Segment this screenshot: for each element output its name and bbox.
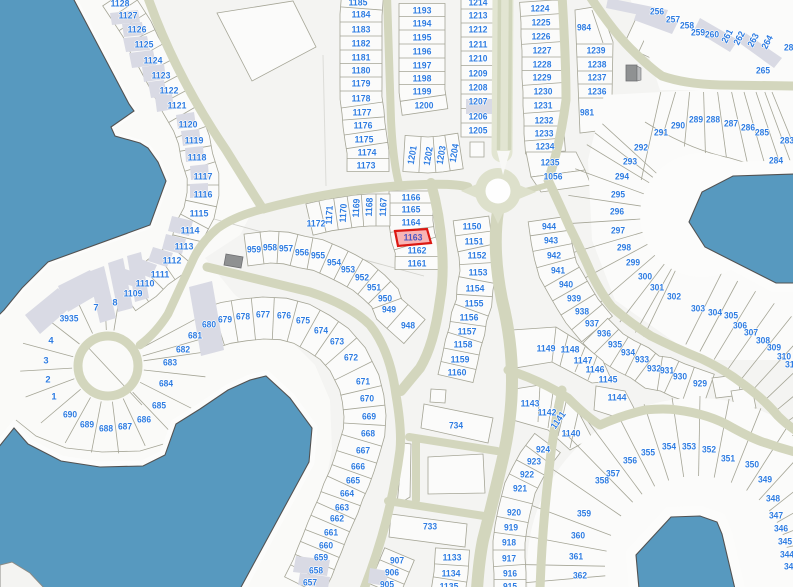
svg-text:940: 940 bbox=[559, 278, 573, 289]
svg-text:1159: 1159 bbox=[451, 353, 470, 364]
svg-text:734: 734 bbox=[449, 419, 464, 430]
svg-text:1118: 1118 bbox=[188, 151, 207, 162]
svg-text:949: 949 bbox=[382, 303, 396, 314]
svg-text:689: 689 bbox=[80, 418, 94, 429]
svg-text:282: 282 bbox=[784, 41, 793, 52]
svg-text:916: 916 bbox=[503, 567, 517, 578]
svg-text:1114: 1114 bbox=[181, 224, 201, 235]
svg-text:1235: 1235 bbox=[541, 156, 560, 167]
svg-text:1197: 1197 bbox=[413, 59, 432, 70]
svg-text:355: 355 bbox=[641, 446, 655, 457]
svg-text:957: 957 bbox=[279, 242, 293, 253]
svg-text:1174: 1174 bbox=[358, 146, 378, 157]
svg-text:905: 905 bbox=[380, 578, 394, 587]
svg-text:658: 658 bbox=[309, 564, 323, 575]
svg-text:1112: 1112 bbox=[163, 254, 182, 265]
svg-text:1155: 1155 bbox=[465, 297, 484, 308]
svg-text:1178: 1178 bbox=[352, 92, 371, 103]
svg-text:668: 668 bbox=[361, 427, 375, 438]
svg-text:360: 360 bbox=[571, 529, 585, 540]
svg-text:666: 666 bbox=[351, 460, 365, 471]
svg-text:1167: 1167 bbox=[377, 197, 389, 216]
svg-text:959: 959 bbox=[247, 243, 261, 254]
svg-text:1227: 1227 bbox=[533, 44, 552, 55]
svg-text:1150: 1150 bbox=[463, 220, 482, 231]
svg-text:259: 259 bbox=[691, 26, 705, 37]
svg-text:8: 8 bbox=[112, 296, 117, 307]
svg-text:1177: 1177 bbox=[353, 106, 372, 117]
svg-text:356: 356 bbox=[623, 454, 637, 465]
svg-text:1224: 1224 bbox=[531, 2, 551, 13]
svg-text:353: 353 bbox=[682, 440, 696, 451]
svg-text:675: 675 bbox=[296, 314, 310, 325]
svg-text:284: 284 bbox=[769, 154, 784, 165]
svg-text:350: 350 bbox=[745, 458, 759, 469]
svg-text:684: 684 bbox=[159, 377, 174, 388]
svg-text:915: 915 bbox=[503, 580, 517, 587]
svg-text:1169: 1169 bbox=[350, 198, 362, 217]
svg-text:683: 683 bbox=[163, 356, 177, 367]
svg-text:7: 7 bbox=[93, 301, 98, 312]
svg-text:1121: 1121 bbox=[168, 99, 187, 110]
svg-text:345: 345 bbox=[778, 535, 792, 546]
svg-text:673: 673 bbox=[330, 335, 344, 346]
svg-text:1180: 1180 bbox=[352, 64, 371, 75]
svg-text:3: 3 bbox=[43, 354, 48, 365]
svg-text:362: 362 bbox=[573, 569, 587, 580]
svg-text:256: 256 bbox=[650, 5, 664, 16]
svg-text:1196: 1196 bbox=[413, 45, 432, 56]
svg-text:1164: 1164 bbox=[402, 216, 422, 227]
svg-text:1117: 1117 bbox=[194, 170, 213, 181]
svg-text:1231: 1231 bbox=[534, 99, 553, 110]
svg-text:1165: 1165 bbox=[402, 203, 421, 214]
svg-text:906: 906 bbox=[385, 566, 399, 577]
svg-text:663: 663 bbox=[335, 501, 349, 512]
svg-text:257: 257 bbox=[666, 13, 680, 24]
svg-text:923: 923 bbox=[527, 455, 541, 466]
svg-text:1120: 1120 bbox=[179, 118, 198, 129]
svg-text:1225: 1225 bbox=[532, 16, 551, 27]
svg-text:1211: 1211 bbox=[469, 38, 488, 49]
svg-text:1212: 1212 bbox=[469, 23, 488, 34]
svg-text:347: 347 bbox=[769, 509, 783, 520]
svg-text:304: 304 bbox=[708, 306, 723, 317]
svg-text:300: 300 bbox=[638, 270, 652, 281]
svg-text:935: 935 bbox=[608, 338, 622, 349]
svg-text:1156: 1156 bbox=[460, 311, 479, 322]
svg-text:941: 941 bbox=[551, 264, 565, 275]
svg-text:354: 354 bbox=[662, 440, 677, 451]
svg-text:917: 917 bbox=[502, 552, 516, 563]
svg-text:1127: 1127 bbox=[119, 9, 138, 20]
svg-text:1115: 1115 bbox=[190, 207, 209, 218]
svg-text:1208: 1208 bbox=[469, 81, 488, 92]
svg-text:1237: 1237 bbox=[588, 71, 607, 82]
svg-text:311: 311 bbox=[785, 358, 793, 369]
svg-text:1232: 1232 bbox=[535, 114, 554, 125]
svg-text:955: 955 bbox=[311, 249, 325, 260]
svg-text:919: 919 bbox=[504, 521, 518, 532]
svg-text:1183: 1183 bbox=[352, 23, 371, 34]
svg-text:931: 931 bbox=[660, 364, 674, 375]
svg-text:938: 938 bbox=[575, 305, 589, 316]
svg-text:676: 676 bbox=[277, 309, 291, 320]
svg-text:690: 690 bbox=[63, 408, 77, 419]
svg-text:1179: 1179 bbox=[352, 77, 371, 88]
svg-text:956: 956 bbox=[295, 246, 309, 257]
svg-text:260: 260 bbox=[705, 28, 719, 39]
svg-text:1134: 1134 bbox=[442, 567, 462, 578]
svg-text:681: 681 bbox=[188, 329, 202, 340]
svg-text:359: 359 bbox=[577, 507, 591, 518]
svg-text:934: 934 bbox=[621, 346, 636, 357]
svg-text:950: 950 bbox=[378, 292, 392, 303]
svg-text:733: 733 bbox=[423, 520, 437, 531]
svg-text:951: 951 bbox=[367, 281, 381, 292]
svg-text:296: 296 bbox=[610, 205, 624, 216]
svg-text:1199: 1199 bbox=[413, 85, 432, 96]
svg-text:3935: 3935 bbox=[60, 312, 79, 323]
svg-text:1125: 1125 bbox=[135, 38, 154, 49]
svg-text:1149: 1149 bbox=[537, 342, 556, 353]
svg-text:1234: 1234 bbox=[536, 140, 556, 151]
svg-text:303: 303 bbox=[691, 302, 705, 313]
svg-text:661: 661 bbox=[324, 526, 338, 537]
svg-text:1238: 1238 bbox=[588, 58, 607, 69]
svg-text:349: 349 bbox=[758, 473, 772, 484]
svg-text:677: 677 bbox=[256, 308, 270, 319]
svg-text:1162: 1162 bbox=[408, 244, 427, 255]
svg-text:920: 920 bbox=[507, 506, 521, 517]
svg-text:954: 954 bbox=[327, 256, 342, 267]
svg-text:292: 292 bbox=[634, 141, 648, 152]
svg-text:1158: 1158 bbox=[454, 338, 473, 349]
svg-text:343: 343 bbox=[784, 560, 793, 571]
svg-text:1185: 1185 bbox=[349, 0, 368, 7]
svg-text:1228: 1228 bbox=[533, 58, 552, 69]
svg-text:1175: 1175 bbox=[355, 133, 374, 144]
svg-text:1128: 1128 bbox=[111, 0, 130, 8]
svg-text:1166: 1166 bbox=[402, 191, 421, 202]
svg-text:1119: 1119 bbox=[185, 134, 204, 145]
svg-text:1133: 1133 bbox=[443, 551, 462, 562]
svg-text:687: 687 bbox=[118, 420, 132, 431]
svg-text:286: 286 bbox=[741, 121, 755, 132]
svg-text:1173: 1173 bbox=[357, 159, 376, 170]
svg-text:346: 346 bbox=[774, 522, 788, 533]
svg-text:290: 290 bbox=[671, 119, 685, 130]
svg-text:1126: 1126 bbox=[128, 23, 147, 34]
svg-text:939: 939 bbox=[567, 292, 581, 303]
svg-text:1153: 1153 bbox=[469, 266, 488, 277]
svg-text:667: 667 bbox=[356, 444, 370, 455]
svg-text:1214: 1214 bbox=[469, 0, 489, 7]
svg-text:682: 682 bbox=[176, 343, 190, 354]
svg-text:686: 686 bbox=[137, 413, 151, 424]
svg-text:685: 685 bbox=[152, 399, 166, 410]
svg-text:1184: 1184 bbox=[352, 8, 372, 19]
svg-text:1109: 1109 bbox=[124, 287, 143, 298]
svg-text:1195: 1195 bbox=[413, 31, 432, 42]
svg-text:929: 929 bbox=[693, 377, 707, 388]
svg-text:921: 921 bbox=[513, 482, 527, 493]
svg-text:948: 948 bbox=[401, 319, 415, 330]
svg-text:289: 289 bbox=[689, 113, 703, 124]
svg-text:298: 298 bbox=[617, 241, 631, 252]
svg-text:1140: 1140 bbox=[562, 427, 581, 438]
svg-text:958: 958 bbox=[263, 241, 277, 252]
svg-text:1124: 1124 bbox=[144, 54, 164, 65]
svg-text:1152: 1152 bbox=[468, 249, 487, 260]
svg-text:288: 288 bbox=[706, 113, 720, 124]
svg-text:302: 302 bbox=[667, 290, 681, 301]
svg-text:344: 344 bbox=[780, 548, 793, 559]
svg-text:924: 924 bbox=[536, 443, 551, 454]
svg-text:669: 669 bbox=[362, 410, 376, 421]
svg-text:297: 297 bbox=[611, 224, 625, 235]
svg-text:1154: 1154 bbox=[466, 282, 486, 293]
svg-text:665: 665 bbox=[346, 474, 360, 485]
svg-text:265: 265 bbox=[756, 64, 770, 75]
svg-text:944: 944 bbox=[542, 220, 557, 231]
svg-text:295: 295 bbox=[611, 188, 625, 199]
svg-text:680: 680 bbox=[202, 318, 216, 329]
svg-text:659: 659 bbox=[314, 551, 328, 562]
svg-text:285: 285 bbox=[755, 126, 769, 137]
svg-text:1168: 1168 bbox=[363, 197, 375, 216]
svg-text:907: 907 bbox=[390, 554, 404, 565]
svg-text:981: 981 bbox=[580, 106, 594, 117]
svg-text:1151: 1151 bbox=[465, 235, 484, 246]
svg-text:2: 2 bbox=[45, 373, 50, 384]
svg-text:1170: 1170 bbox=[337, 203, 349, 222]
svg-text:1145: 1145 bbox=[599, 373, 618, 384]
svg-text:299: 299 bbox=[626, 256, 640, 267]
svg-text:1210: 1210 bbox=[469, 52, 488, 63]
svg-text:671: 671 bbox=[356, 375, 370, 386]
svg-text:672: 672 bbox=[344, 351, 358, 362]
svg-text:660: 660 bbox=[319, 539, 333, 550]
svg-text:1116: 1116 bbox=[194, 188, 213, 199]
svg-text:1144: 1144 bbox=[608, 391, 628, 402]
svg-text:936: 936 bbox=[597, 327, 611, 338]
svg-text:283: 283 bbox=[780, 134, 793, 145]
svg-text:679: 679 bbox=[218, 313, 232, 324]
svg-text:1056: 1056 bbox=[544, 170, 563, 181]
svg-text:1157: 1157 bbox=[458, 325, 477, 336]
svg-text:1205: 1205 bbox=[469, 124, 488, 135]
svg-text:1198: 1198 bbox=[413, 72, 432, 83]
svg-text:1206: 1206 bbox=[469, 110, 488, 121]
svg-text:1135: 1135 bbox=[440, 580, 459, 587]
svg-text:670: 670 bbox=[360, 392, 374, 403]
svg-text:301: 301 bbox=[650, 281, 664, 292]
svg-text:351: 351 bbox=[721, 452, 735, 463]
svg-text:294: 294 bbox=[615, 170, 630, 181]
svg-text:1193: 1193 bbox=[413, 4, 432, 15]
svg-text:1123: 1123 bbox=[152, 69, 171, 80]
svg-text:918: 918 bbox=[502, 536, 516, 547]
svg-text:1230: 1230 bbox=[534, 85, 553, 96]
svg-text:1200: 1200 bbox=[415, 99, 434, 110]
svg-text:1113: 1113 bbox=[175, 240, 194, 251]
svg-text:1182: 1182 bbox=[352, 37, 371, 48]
svg-text:942: 942 bbox=[547, 249, 561, 260]
svg-text:943: 943 bbox=[544, 234, 558, 245]
svg-text:930: 930 bbox=[673, 370, 687, 381]
svg-text:664: 664 bbox=[340, 487, 355, 498]
svg-text:1148: 1148 bbox=[561, 343, 580, 354]
svg-text:678: 678 bbox=[236, 310, 250, 321]
svg-text:1213: 1213 bbox=[469, 9, 488, 20]
svg-text:984: 984 bbox=[577, 21, 592, 32]
svg-text:932: 932 bbox=[647, 362, 661, 373]
svg-text:293: 293 bbox=[623, 155, 637, 166]
svg-text:922: 922 bbox=[520, 468, 534, 479]
svg-text:1194: 1194 bbox=[413, 17, 433, 28]
svg-text:1143: 1143 bbox=[521, 397, 540, 408]
svg-text:1181: 1181 bbox=[352, 51, 371, 62]
svg-text:1233: 1233 bbox=[535, 127, 554, 138]
svg-text:361: 361 bbox=[569, 550, 583, 561]
svg-text:1239: 1239 bbox=[587, 44, 606, 55]
svg-text:1226: 1226 bbox=[532, 30, 551, 41]
svg-text:1122: 1122 bbox=[160, 84, 179, 95]
svg-text:953: 953 bbox=[341, 263, 355, 274]
svg-text:348: 348 bbox=[766, 492, 780, 503]
svg-text:1163: 1163 bbox=[404, 231, 423, 242]
svg-text:4: 4 bbox=[48, 334, 54, 345]
svg-text:358: 358 bbox=[595, 474, 609, 485]
svg-text:287: 287 bbox=[724, 117, 738, 128]
svg-text:1207: 1207 bbox=[469, 95, 488, 106]
svg-text:1229: 1229 bbox=[533, 71, 552, 82]
svg-text:662: 662 bbox=[330, 512, 344, 523]
svg-text:1236: 1236 bbox=[588, 85, 607, 96]
svg-text:674: 674 bbox=[314, 324, 329, 335]
svg-text:1209: 1209 bbox=[469, 67, 488, 78]
svg-text:1171: 1171 bbox=[323, 205, 335, 224]
svg-text:1176: 1176 bbox=[354, 119, 373, 130]
svg-text:1: 1 bbox=[51, 390, 56, 401]
svg-text:657: 657 bbox=[303, 576, 317, 587]
svg-text:1161: 1161 bbox=[408, 257, 427, 268]
svg-text:291: 291 bbox=[654, 126, 668, 137]
svg-text:688: 688 bbox=[99, 422, 113, 433]
svg-text:1160: 1160 bbox=[448, 366, 467, 377]
svg-text:352: 352 bbox=[702, 443, 716, 454]
